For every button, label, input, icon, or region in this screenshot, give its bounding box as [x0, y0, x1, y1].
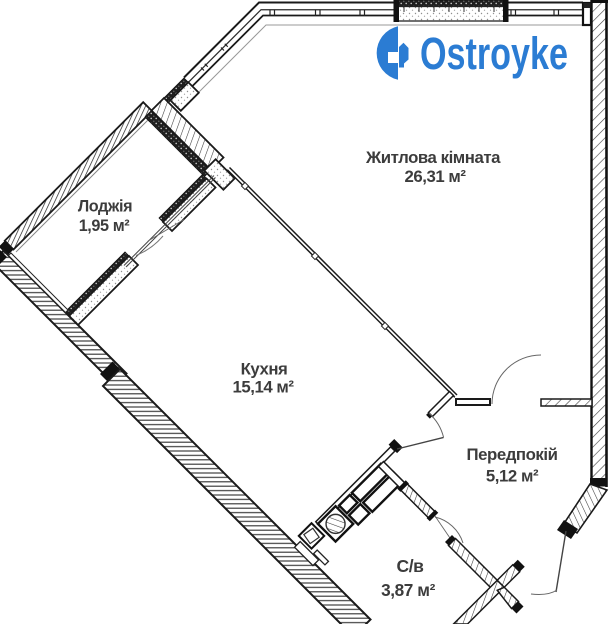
- svg-text:Ostroyke: Ostroyke: [420, 28, 568, 79]
- svg-text:5,12 м²: 5,12 м²: [486, 467, 539, 486]
- svg-text:26,31 м²: 26,31 м²: [404, 167, 466, 186]
- svg-text:Передпокій: Передпокій: [467, 445, 558, 464]
- svg-text:Кухня: Кухня: [241, 360, 288, 379]
- svg-text:С/в: С/в: [396, 556, 424, 576]
- svg-text:Житлова кімната: Житлова кімната: [365, 148, 501, 167]
- svg-text:Лоджія: Лоджія: [78, 198, 132, 216]
- svg-text:1,95 м²: 1,95 м²: [79, 217, 131, 235]
- svg-text:15,14 м²: 15,14 м²: [232, 378, 294, 397]
- svg-text:3,87 м²: 3,87 м²: [381, 580, 436, 600]
